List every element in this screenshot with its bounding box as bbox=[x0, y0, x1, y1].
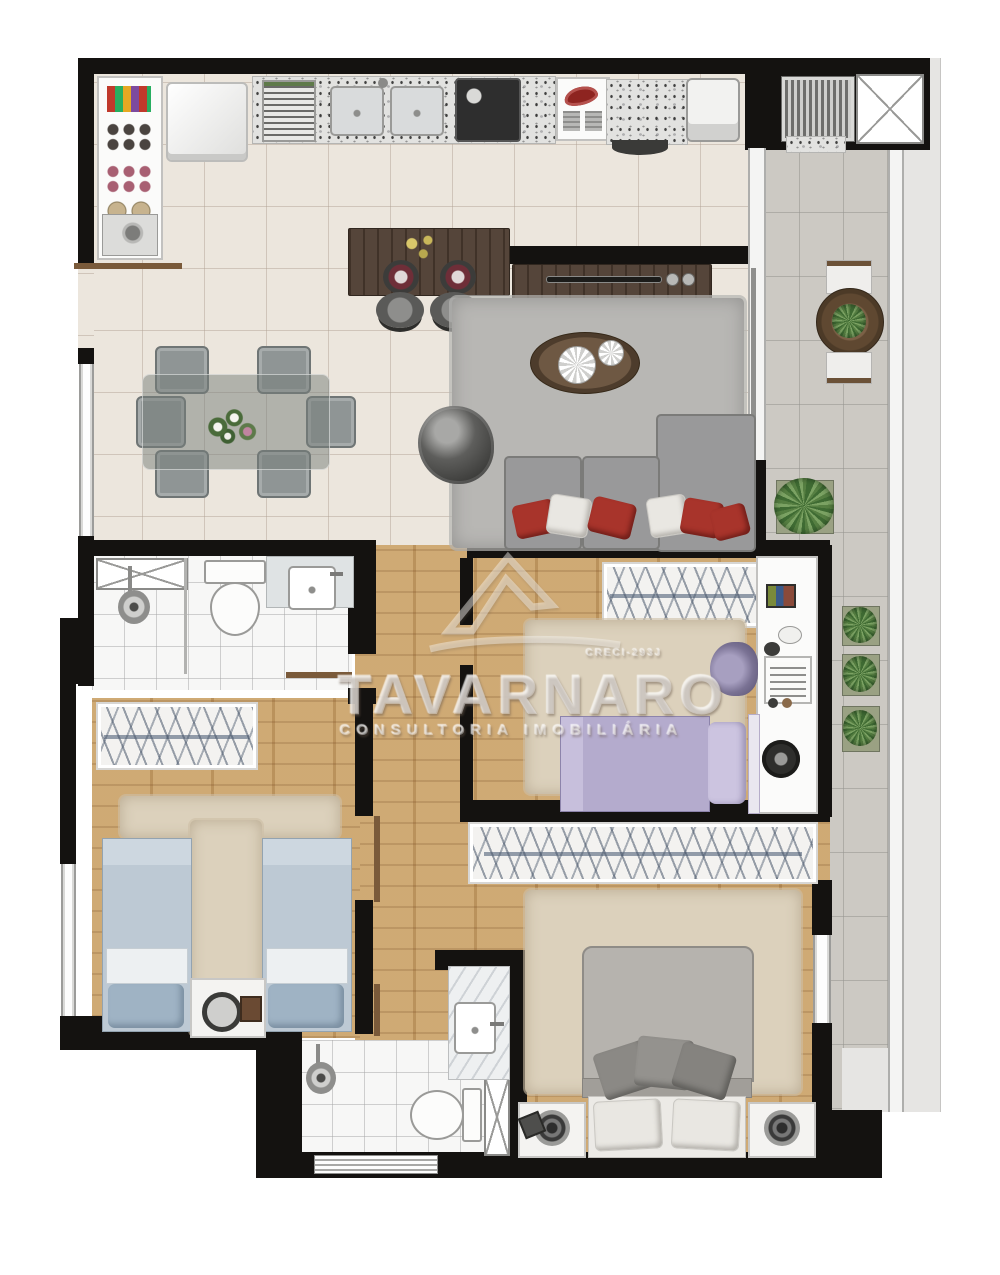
pantry-jars bbox=[107, 86, 151, 112]
bathroom1-door bbox=[286, 672, 352, 678]
plant-1 bbox=[843, 607, 877, 643]
iron-cabinet bbox=[556, 77, 610, 141]
plant-2 bbox=[843, 656, 877, 692]
wall-left-stub bbox=[78, 348, 94, 364]
desk-poster bbox=[766, 584, 796, 608]
kitchen-sink-right bbox=[390, 86, 444, 136]
bar-flowers bbox=[398, 230, 444, 264]
refrigerator bbox=[166, 82, 248, 162]
twin-bed-right-sheet bbox=[266, 948, 348, 984]
master-lamp-right bbox=[764, 1110, 800, 1146]
kitchen-faucet bbox=[378, 78, 388, 88]
shower1-arm bbox=[128, 566, 132, 592]
twin-bed-left-pillow bbox=[108, 984, 184, 1028]
sofa-pillow-white-1 bbox=[545, 493, 593, 539]
twin-photo-frame bbox=[240, 996, 262, 1022]
media-knob-1 bbox=[666, 273, 679, 286]
toilet2-tank bbox=[462, 1088, 482, 1142]
bathroom2-window bbox=[314, 1155, 438, 1174]
dining-centerpiece bbox=[198, 404, 264, 450]
folded-cloth-2 bbox=[585, 111, 602, 131]
shaft-bathroom1 bbox=[96, 558, 188, 590]
shaft-top-right bbox=[856, 74, 924, 144]
balcony-glass-railing bbox=[888, 148, 904, 1112]
coffee-table-plate-2 bbox=[598, 340, 624, 366]
twin-bedroom-window bbox=[61, 864, 76, 1016]
shower1-head bbox=[118, 590, 150, 624]
twin-bedroom-door bbox=[374, 816, 380, 902]
balcony-table-plant bbox=[832, 304, 866, 338]
desk-chair bbox=[710, 642, 758, 696]
desk-plate bbox=[778, 626, 802, 644]
bar-bowl-2 bbox=[440, 260, 476, 294]
pantry-dark-plates bbox=[105, 122, 153, 152]
wall-bed1-right-upper bbox=[355, 700, 373, 816]
toilet1-tank bbox=[204, 560, 266, 584]
wall-master-east-lower bbox=[812, 1023, 832, 1113]
wall-left-step bbox=[60, 618, 94, 684]
twin-clock bbox=[202, 992, 242, 1032]
media-knob-2 bbox=[682, 273, 695, 286]
single-wardrobe bbox=[602, 562, 762, 628]
wall-bed1-right-lower bbox=[355, 900, 373, 1034]
soundbar bbox=[546, 276, 662, 283]
barbecue-counter bbox=[786, 136, 846, 153]
shower1-glass bbox=[184, 558, 187, 674]
steering-wheel bbox=[762, 740, 800, 778]
desk-dot-2 bbox=[782, 698, 792, 708]
wall-master-east-upper bbox=[812, 880, 832, 935]
wall-bath1-top bbox=[92, 540, 376, 556]
plant-large bbox=[774, 478, 834, 534]
desk-laptop bbox=[764, 656, 812, 704]
master-wardrobe bbox=[468, 822, 818, 884]
barbecue-grill bbox=[782, 77, 854, 141]
pantry-unit bbox=[97, 76, 163, 260]
exterior-ledge bbox=[904, 58, 941, 1112]
dish-rack bbox=[262, 80, 316, 142]
twin-wardrobe bbox=[96, 702, 258, 770]
desk-teapot bbox=[764, 642, 780, 656]
bathroom2-door bbox=[374, 984, 380, 1036]
vanity1-tap bbox=[330, 572, 343, 576]
wall-left-upper bbox=[78, 58, 94, 263]
egg-armchair bbox=[418, 406, 494, 484]
plant-3 bbox=[843, 710, 877, 746]
clothes-iron bbox=[562, 83, 599, 109]
desk-dot-1 bbox=[768, 698, 778, 708]
bar-bowl-1 bbox=[383, 260, 419, 294]
floorplan-canvas: TAVARNARO CONSULTORIA IMOBILIÁRIA CRECI-… bbox=[0, 0, 1000, 1275]
laundry-counter bbox=[606, 79, 688, 145]
pantry-pink-plates bbox=[105, 164, 153, 194]
coffee-table-plate-1 bbox=[558, 346, 596, 384]
single-bed-headboard bbox=[748, 714, 760, 814]
wall-bed2-west-upper bbox=[460, 558, 473, 625]
master-window bbox=[813, 935, 831, 1023]
wall-bed2-west-lower bbox=[460, 665, 473, 815]
tv-feature-wall bbox=[508, 246, 760, 264]
wall-bath2-left-block bbox=[256, 1032, 302, 1160]
cooktop bbox=[455, 78, 521, 142]
kitchen-sink-left bbox=[330, 86, 384, 136]
bar-stool-1 bbox=[376, 292, 424, 328]
toilet2-bowl bbox=[410, 1090, 464, 1140]
single-bed-pillow bbox=[708, 722, 746, 804]
twin-bed-right-pillow bbox=[268, 984, 344, 1028]
shower2-head bbox=[306, 1062, 336, 1094]
coffee-machine bbox=[102, 214, 158, 256]
laundry-tub bbox=[686, 78, 740, 142]
washer-under-counter bbox=[612, 140, 668, 155]
balcony-chair-bottom bbox=[826, 352, 872, 384]
entrance-door bbox=[74, 263, 182, 269]
vanity1-sink bbox=[288, 566, 336, 610]
shaft-bathroom2 bbox=[484, 1078, 510, 1156]
wall-left-bed1 bbox=[60, 680, 76, 864]
twin-bed-left-sheet bbox=[106, 948, 188, 984]
master-pillow-right bbox=[671, 1098, 742, 1151]
vanity2-tap bbox=[490, 1022, 504, 1026]
vanity2-sink bbox=[454, 1002, 496, 1054]
master-pillow-left bbox=[593, 1098, 664, 1151]
single-bed bbox=[560, 716, 710, 812]
dining-window bbox=[79, 364, 94, 536]
folded-cloth-1 bbox=[563, 111, 580, 131]
entrance-opening bbox=[78, 263, 94, 348]
